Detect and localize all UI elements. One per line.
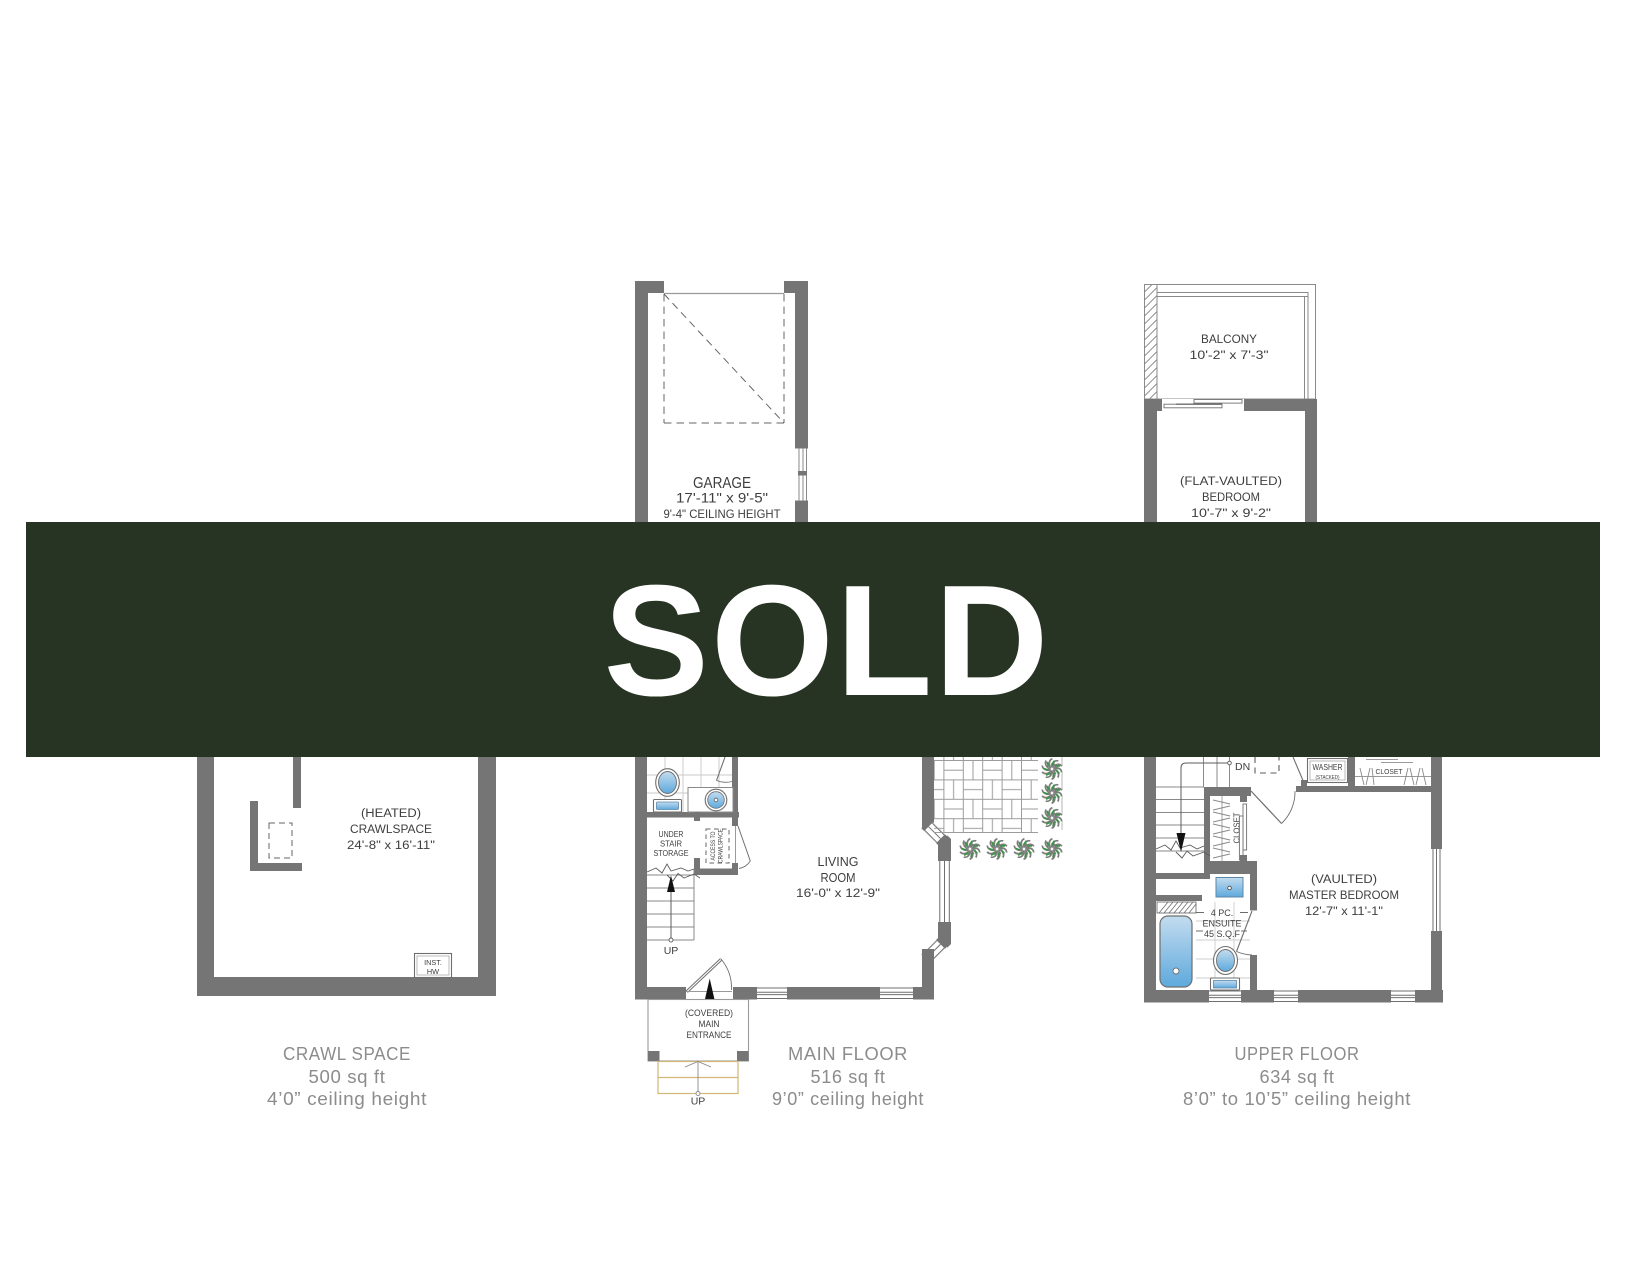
svg-text:(COVERED): (COVERED)	[685, 1008, 733, 1018]
svg-text:GARAGE: GARAGE	[693, 475, 751, 492]
svg-text:CRAWLSPACE: CRAWLSPACE	[350, 824, 432, 836]
svg-text:MAIN FLOOR: MAIN FLOOR	[788, 1044, 908, 1064]
svg-text:17'-11" x 9'-5": 17'-11" x 9'-5"	[676, 491, 768, 506]
svg-text:4’0” ceiling height: 4’0” ceiling height	[267, 1089, 427, 1109]
svg-text:CRAWLSPACE: CRAWLSPACE	[718, 829, 725, 863]
svg-text:MASTER BEDROOM: MASTER BEDROOM	[1289, 890, 1399, 902]
svg-text:ACCESS TO: ACCESS TO	[710, 831, 717, 860]
svg-text:LIVING: LIVING	[818, 855, 859, 869]
svg-text:24'-8" x 16'-11": 24'-8" x 16'-11"	[347, 838, 435, 852]
svg-text:UP: UP	[691, 1096, 706, 1108]
svg-text:12'-7" x 11'-1": 12'-7" x 11'-1"	[1305, 904, 1383, 918]
svg-text:DN: DN	[1235, 761, 1250, 773]
svg-text:BALCONY: BALCONY	[1201, 334, 1257, 346]
svg-text:634 sq ft: 634 sq ft	[1260, 1067, 1335, 1087]
svg-text:INST.: INST.	[424, 958, 442, 967]
svg-text:45 S.Q.F: 45 S.Q.F	[1204, 929, 1241, 939]
svg-text:ENSUITE: ENSUITE	[1202, 919, 1241, 929]
svg-text:STORAGE: STORAGE	[654, 849, 689, 858]
svg-text:10'-2" x 7'-3": 10'-2" x 7'-3"	[1190, 348, 1269, 362]
svg-text:STAIR: STAIR	[660, 840, 682, 849]
svg-text:(STACKED): (STACKED)	[1316, 775, 1340, 781]
svg-text:BEDROOM: BEDROOM	[1202, 492, 1260, 504]
svg-text:ENTRANCE: ENTRANCE	[687, 1030, 732, 1040]
svg-text:(FLAT-VAULTED): (FLAT-VAULTED)	[1180, 476, 1282, 488]
svg-text:UPPER FLOOR: UPPER FLOOR	[1235, 1044, 1360, 1064]
svg-text:ROOM: ROOM	[821, 871, 856, 885]
svg-text:WASHER: WASHER	[1313, 763, 1343, 772]
svg-text:9'-4" CEILING HEIGHT: 9'-4" CEILING HEIGHT	[664, 507, 782, 521]
svg-text:SOLD: SOLD	[604, 553, 1051, 729]
svg-text:500 sq ft: 500 sq ft	[309, 1067, 386, 1087]
svg-text:16'-0" x 12'-9": 16'-0" x 12'-9"	[796, 886, 880, 900]
svg-text:516 sq ft: 516 sq ft	[811, 1067, 886, 1087]
svg-text:4 PC.: 4 PC.	[1211, 908, 1234, 918]
svg-text:10'-7" x 9'-2": 10'-7" x 9'-2"	[1191, 506, 1271, 520]
svg-text:(HEATED): (HEATED)	[361, 808, 421, 820]
svg-text:8’0” to 10’5” ceiling height: 8’0” to 10’5” ceiling height	[1183, 1089, 1411, 1109]
svg-text:9’0” ceiling height: 9’0” ceiling height	[772, 1089, 924, 1109]
svg-text:CLOSET: CLOSET	[1376, 767, 1403, 776]
svg-text:CRAWL SPACE: CRAWL SPACE	[283, 1044, 411, 1064]
svg-text:MAIN: MAIN	[699, 1019, 720, 1029]
svg-text:UP: UP	[664, 945, 679, 957]
svg-text:(VAULTED): (VAULTED)	[1311, 874, 1377, 886]
svg-text:UNDER: UNDER	[659, 830, 684, 839]
svg-text:HW: HW	[427, 967, 439, 976]
